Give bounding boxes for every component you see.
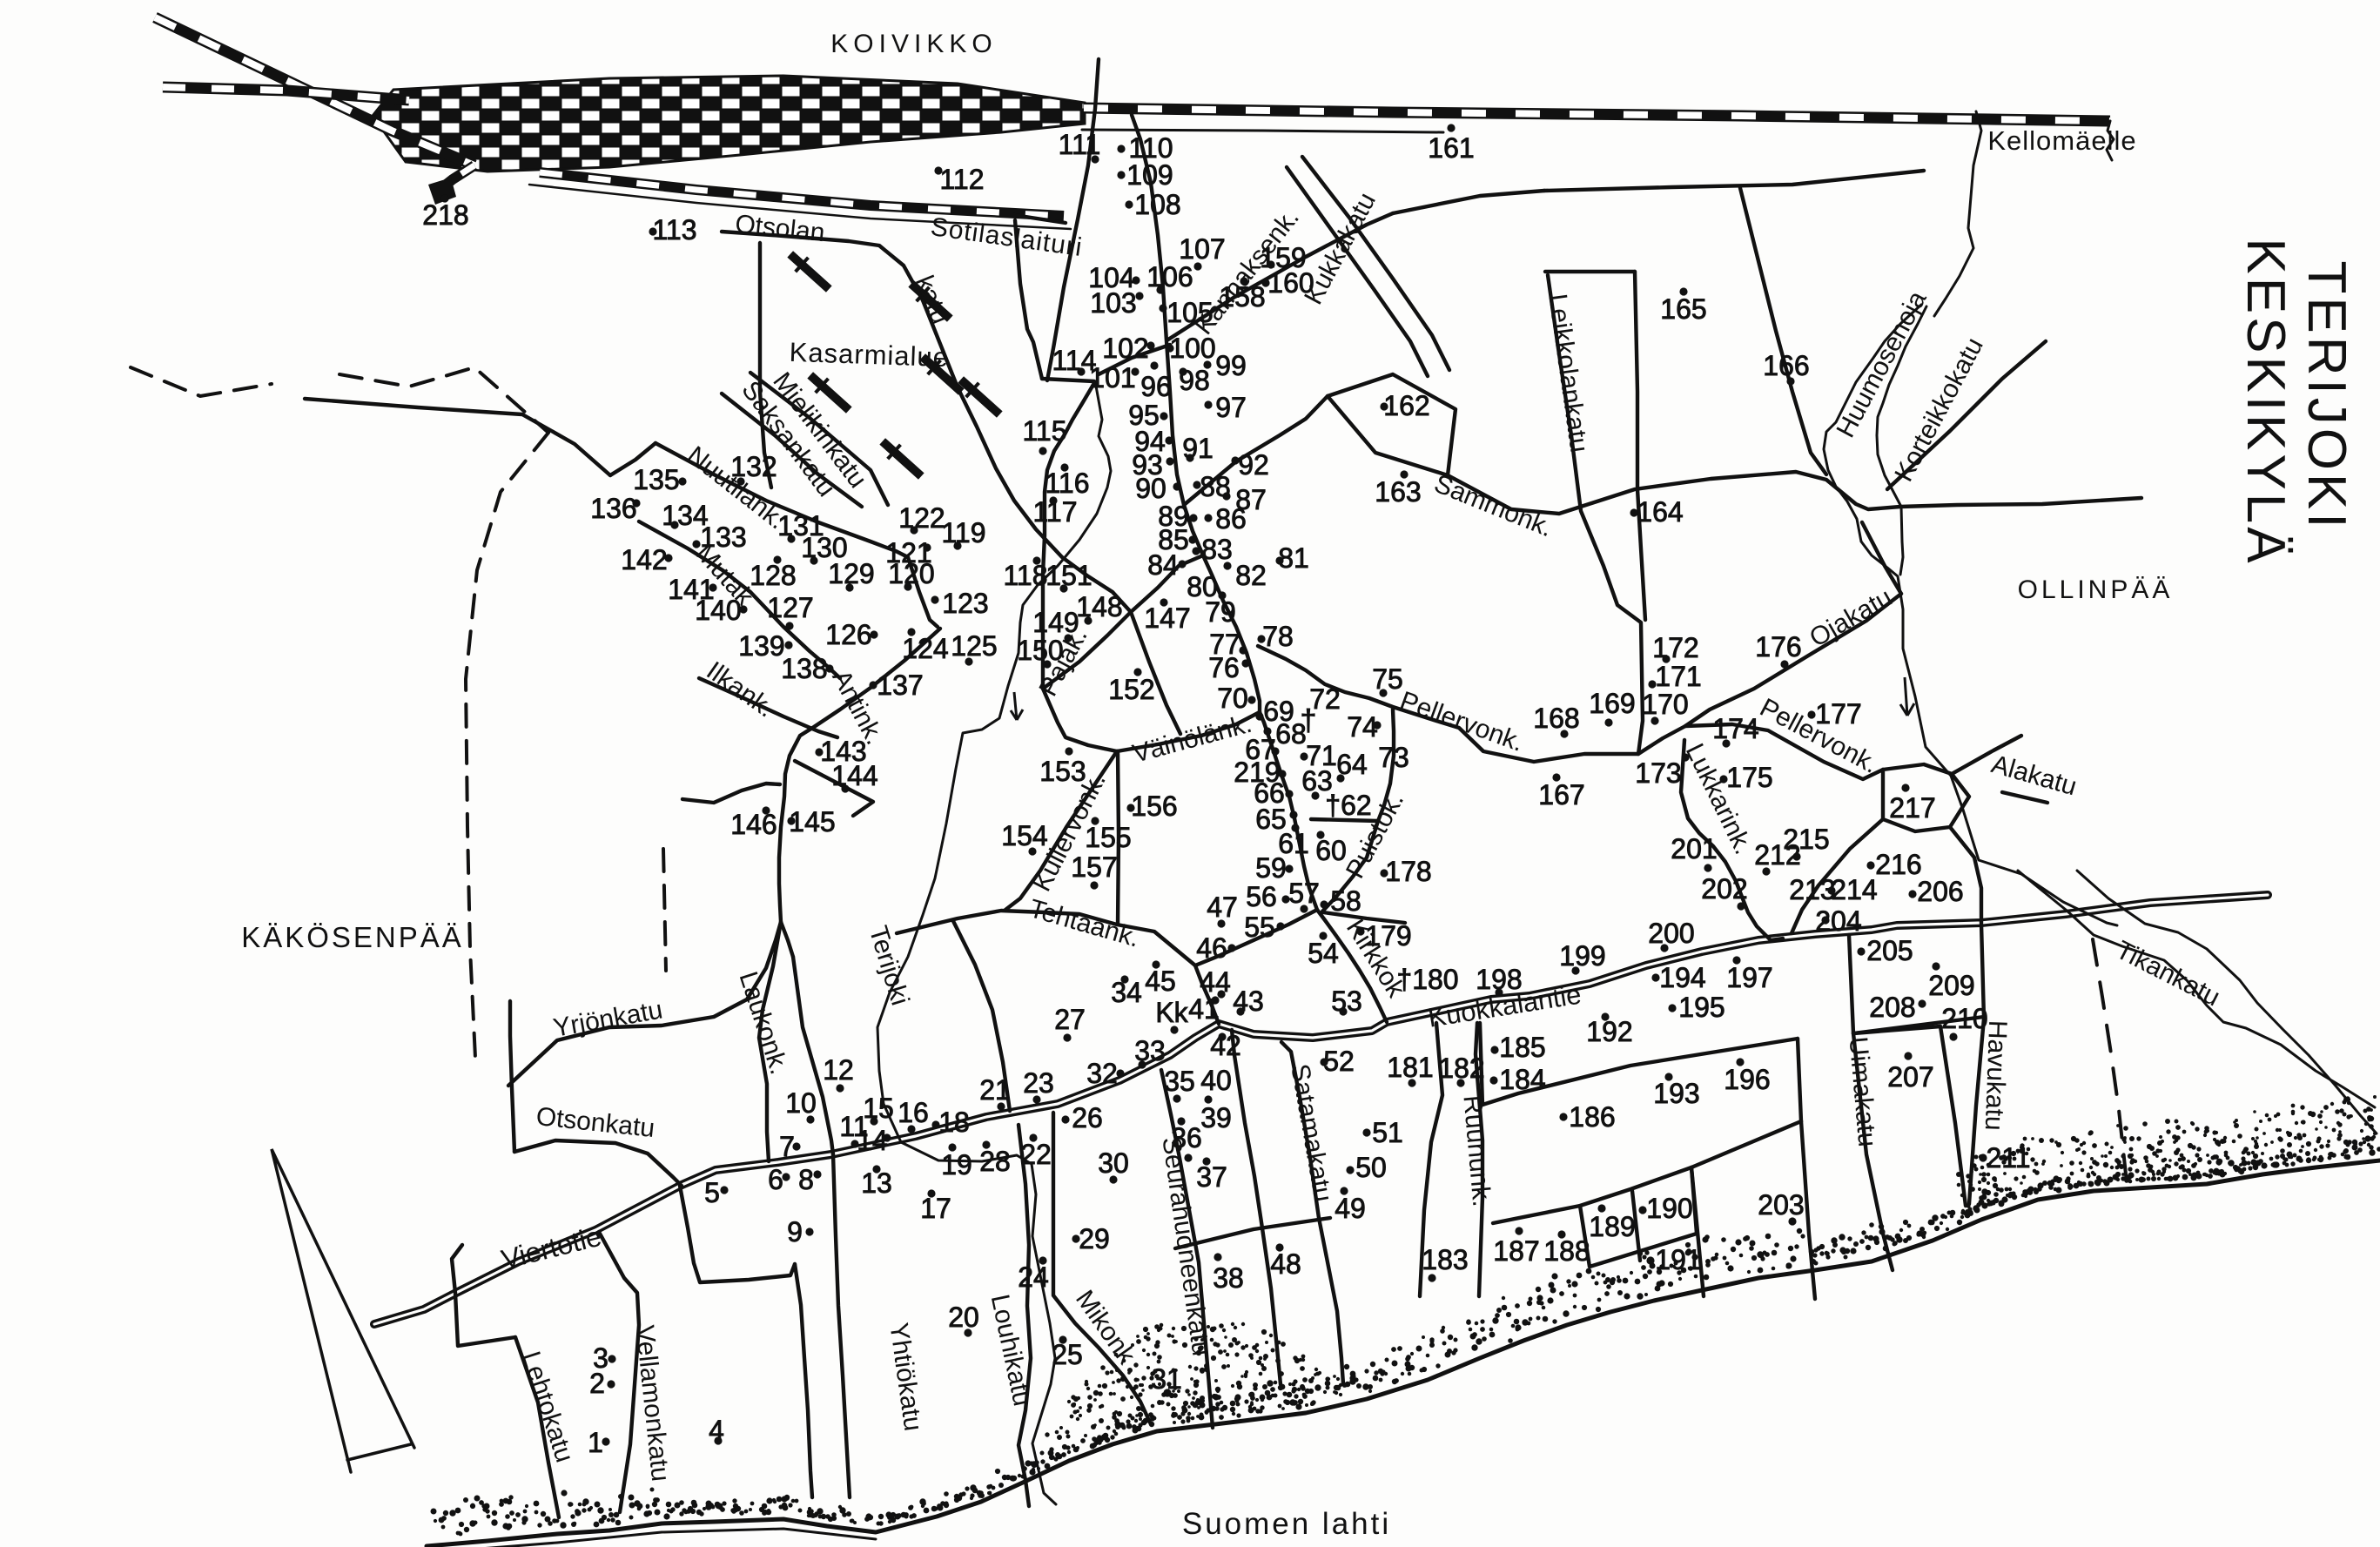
svg-text:80: 80 xyxy=(1187,571,1218,602)
svg-text:30: 30 xyxy=(1098,1147,1129,1179)
svg-text:170: 170 xyxy=(1642,689,1688,720)
svg-text:138: 138 xyxy=(781,653,827,684)
svg-text:172: 172 xyxy=(1652,632,1698,663)
svg-text:154: 154 xyxy=(1001,820,1047,851)
svg-text:42: 42 xyxy=(1210,1030,1241,1061)
svg-text:151: 151 xyxy=(1045,560,1092,591)
svg-text:197: 197 xyxy=(1726,962,1772,993)
svg-text:118: 118 xyxy=(1003,560,1047,591)
svg-text:38: 38 xyxy=(1213,1262,1244,1294)
svg-text:141: 141 xyxy=(668,574,714,605)
svg-text:Havukatu: Havukatu xyxy=(1980,1019,2012,1131)
svg-text:128: 128 xyxy=(750,560,796,591)
svg-text:142: 142 xyxy=(621,544,667,575)
svg-text:203: 203 xyxy=(1758,1189,1804,1221)
svg-text:205: 205 xyxy=(1866,935,1913,966)
svg-text:1: 1 xyxy=(588,1427,603,1458)
svg-text:217: 217 xyxy=(1889,792,1935,824)
svg-text:214: 214 xyxy=(1831,874,1877,905)
svg-text:KESKIKYLÄ: KESKIKYLÄ xyxy=(2235,238,2296,566)
svg-text:46: 46 xyxy=(1196,932,1227,964)
svg-text:16: 16 xyxy=(898,1097,929,1128)
svg-text:188: 188 xyxy=(1543,1235,1590,1267)
svg-text:37: 37 xyxy=(1196,1161,1227,1193)
svg-text:OLLINPÄÄ: OLLINPÄÄ xyxy=(2018,575,2174,604)
svg-text:157: 157 xyxy=(1071,851,1117,883)
svg-text:110: 110 xyxy=(1128,132,1173,164)
svg-text:189: 189 xyxy=(1589,1211,1635,1242)
svg-text:107: 107 xyxy=(1179,233,1225,265)
svg-text:115: 115 xyxy=(1022,415,1066,447)
svg-text:18: 18 xyxy=(938,1106,970,1138)
svg-text:Kasarmialue: Kasarmialue xyxy=(789,337,949,373)
svg-text:178: 178 xyxy=(1385,856,1431,887)
svg-text:192: 192 xyxy=(1586,1016,1632,1047)
svg-text:113: 113 xyxy=(652,214,696,246)
svg-text:174: 174 xyxy=(1712,713,1758,744)
svg-text:32: 32 xyxy=(1086,1058,1118,1089)
svg-text:74: 74 xyxy=(1347,711,1378,743)
svg-text:7: 7 xyxy=(779,1131,795,1162)
svg-text:176: 176 xyxy=(1755,631,1801,663)
svg-text:116: 116 xyxy=(1045,467,1089,499)
svg-text:45: 45 xyxy=(1145,965,1176,997)
svg-text:169: 169 xyxy=(1589,688,1635,719)
svg-text:73: 73 xyxy=(1378,742,1409,773)
svg-text:184: 184 xyxy=(1499,1064,1545,1095)
svg-text:26: 26 xyxy=(1072,1102,1103,1133)
svg-text:148: 148 xyxy=(1076,591,1122,622)
svg-text:78: 78 xyxy=(1262,621,1294,652)
svg-text:195: 195 xyxy=(1678,992,1724,1023)
svg-text:51: 51 xyxy=(1372,1117,1403,1148)
svg-text:5: 5 xyxy=(704,1177,720,1208)
svg-text:196: 196 xyxy=(1724,1064,1770,1095)
svg-text:190: 190 xyxy=(1646,1193,1692,1224)
svg-text:TERIJOKI: TERIJOKI xyxy=(2296,260,2356,531)
svg-text:KOIVIKKO: KOIVIKKO xyxy=(830,30,997,58)
svg-text:25: 25 xyxy=(1052,1339,1083,1370)
svg-text:181: 181 xyxy=(1387,1052,1433,1083)
svg-text:108: 108 xyxy=(1134,189,1180,220)
svg-text:216: 216 xyxy=(1875,849,1921,880)
svg-text:24: 24 xyxy=(1018,1261,1049,1293)
svg-text:187: 187 xyxy=(1493,1235,1539,1267)
svg-text:135: 135 xyxy=(633,464,679,495)
svg-text:27: 27 xyxy=(1054,1004,1086,1035)
svg-text:69: 69 xyxy=(1263,696,1294,727)
svg-text:95: 95 xyxy=(1128,400,1160,431)
svg-text:23: 23 xyxy=(1023,1067,1054,1099)
svg-text:49: 49 xyxy=(1335,1193,1366,1224)
svg-text:83: 83 xyxy=(1201,534,1233,565)
svg-text:104: 104 xyxy=(1088,262,1134,293)
svg-text:81: 81 xyxy=(1278,542,1309,574)
svg-text:14: 14 xyxy=(857,1125,888,1156)
svg-text:21: 21 xyxy=(979,1074,1011,1106)
svg-text:87: 87 xyxy=(1235,484,1267,515)
svg-text:219: 219 xyxy=(1234,757,1280,788)
svg-text:185: 185 xyxy=(1499,1032,1545,1063)
svg-text:207: 207 xyxy=(1887,1061,1933,1093)
svg-text:218: 218 xyxy=(422,199,468,231)
svg-text:44: 44 xyxy=(1200,966,1231,998)
svg-text:†62: †62 xyxy=(1325,790,1371,821)
svg-text:139: 139 xyxy=(738,630,784,662)
svg-text:126: 126 xyxy=(825,619,871,650)
svg-text:28: 28 xyxy=(979,1146,1011,1177)
svg-text:173: 173 xyxy=(1635,757,1681,789)
svg-text:215: 215 xyxy=(1783,824,1829,855)
svg-text:†: † xyxy=(1301,704,1317,737)
svg-text:124: 124 xyxy=(902,633,948,664)
svg-text:166: 166 xyxy=(1763,350,1809,381)
svg-text:22: 22 xyxy=(1020,1139,1052,1170)
svg-text:123: 123 xyxy=(942,588,988,619)
svg-text:97: 97 xyxy=(1215,392,1247,423)
svg-text:164: 164 xyxy=(1637,496,1683,528)
svg-text:144: 144 xyxy=(831,760,877,791)
svg-text:15: 15 xyxy=(863,1093,894,1124)
svg-text:161: 161 xyxy=(1428,132,1474,164)
svg-text:8: 8 xyxy=(798,1164,814,1195)
svg-text:210: 210 xyxy=(1941,1003,1987,1034)
svg-text:211: 211 xyxy=(1986,1142,2030,1174)
svg-text:58: 58 xyxy=(1330,885,1361,917)
svg-text:125: 125 xyxy=(951,630,997,662)
svg-text:208: 208 xyxy=(1869,992,1915,1023)
svg-text:137: 137 xyxy=(877,669,923,701)
svg-text:201: 201 xyxy=(1671,833,1717,864)
svg-text:121: 121 xyxy=(885,537,931,568)
svg-text:102: 102 xyxy=(1102,333,1148,364)
svg-text:191: 191 xyxy=(1655,1244,1701,1275)
svg-text:10: 10 xyxy=(785,1087,817,1119)
svg-text:57: 57 xyxy=(1288,878,1320,909)
svg-text:99: 99 xyxy=(1215,350,1247,381)
svg-text:202: 202 xyxy=(1701,873,1747,905)
svg-text:47: 47 xyxy=(1207,891,1238,923)
svg-text:109: 109 xyxy=(1126,159,1173,191)
svg-text:209: 209 xyxy=(1928,970,1974,1001)
svg-text:75: 75 xyxy=(1372,663,1403,695)
svg-text:88: 88 xyxy=(1200,471,1231,502)
svg-text:3: 3 xyxy=(593,1342,608,1374)
svg-text:20: 20 xyxy=(948,1301,979,1333)
svg-text:33: 33 xyxy=(1134,1035,1166,1066)
svg-text:Kellomäelle: Kellomäelle xyxy=(1987,125,2136,156)
svg-text:Suomen lahti: Suomen lahti xyxy=(1182,1507,1391,1541)
svg-text:54: 54 xyxy=(1308,938,1339,969)
svg-text:39: 39 xyxy=(1200,1102,1232,1133)
svg-text:12: 12 xyxy=(823,1054,854,1086)
svg-text:71: 71 xyxy=(1306,740,1337,771)
svg-text:146: 146 xyxy=(730,809,777,840)
svg-text:92: 92 xyxy=(1238,449,1269,481)
svg-text:77: 77 xyxy=(1209,629,1240,660)
svg-text:145: 145 xyxy=(789,806,835,837)
svg-text:163: 163 xyxy=(1375,476,1421,508)
svg-text:200: 200 xyxy=(1648,918,1694,949)
svg-text:96: 96 xyxy=(1140,371,1172,402)
svg-text:Kk: Kk xyxy=(1155,997,1188,1028)
svg-text:136: 136 xyxy=(590,493,636,524)
svg-text:175: 175 xyxy=(1726,762,1772,793)
svg-text:52: 52 xyxy=(1323,1046,1355,1077)
svg-text:114: 114 xyxy=(1052,345,1096,376)
svg-text:112: 112 xyxy=(939,164,984,195)
svg-text:122: 122 xyxy=(898,502,945,534)
svg-text:KÄKÖSENPÄÄ: KÄKÖSENPÄÄ xyxy=(241,921,464,953)
svg-text:167: 167 xyxy=(1538,779,1584,810)
svg-text:60: 60 xyxy=(1315,835,1347,866)
svg-text:127: 127 xyxy=(767,592,813,623)
svg-text:56: 56 xyxy=(1246,881,1277,912)
svg-text:40: 40 xyxy=(1200,1065,1232,1096)
svg-text:50: 50 xyxy=(1355,1152,1387,1183)
svg-text:147: 147 xyxy=(1144,602,1190,634)
svg-text:48: 48 xyxy=(1270,1248,1301,1280)
svg-text:186: 186 xyxy=(1569,1101,1615,1133)
svg-text:152: 152 xyxy=(1108,674,1154,705)
svg-text:82: 82 xyxy=(1235,560,1267,591)
svg-text:156: 156 xyxy=(1131,790,1177,822)
svg-text:162: 162 xyxy=(1383,390,1429,421)
svg-text:199: 199 xyxy=(1559,940,1605,972)
svg-text:206: 206 xyxy=(1917,876,1963,907)
svg-text:6: 6 xyxy=(768,1164,783,1195)
svg-text:134: 134 xyxy=(662,500,708,531)
svg-text:89: 89 xyxy=(1158,501,1189,532)
svg-text:183: 183 xyxy=(1422,1244,1468,1275)
svg-text:19: 19 xyxy=(941,1149,972,1180)
svg-text:171: 171 xyxy=(1655,661,1701,692)
svg-text:55: 55 xyxy=(1244,911,1275,943)
svg-text:119: 119 xyxy=(941,517,985,548)
svg-text:9: 9 xyxy=(787,1216,803,1248)
svg-text:29: 29 xyxy=(1079,1223,1110,1254)
svg-text:17: 17 xyxy=(920,1193,951,1224)
svg-text:194: 194 xyxy=(1659,962,1705,993)
svg-text:35: 35 xyxy=(1164,1066,1195,1097)
svg-text:70: 70 xyxy=(1217,683,1248,714)
svg-text:155: 155 xyxy=(1085,822,1131,853)
svg-text:165: 165 xyxy=(1660,293,1706,325)
svg-text:168: 168 xyxy=(1533,703,1579,734)
svg-text:193: 193 xyxy=(1653,1078,1699,1109)
svg-text:106: 106 xyxy=(1146,261,1193,293)
